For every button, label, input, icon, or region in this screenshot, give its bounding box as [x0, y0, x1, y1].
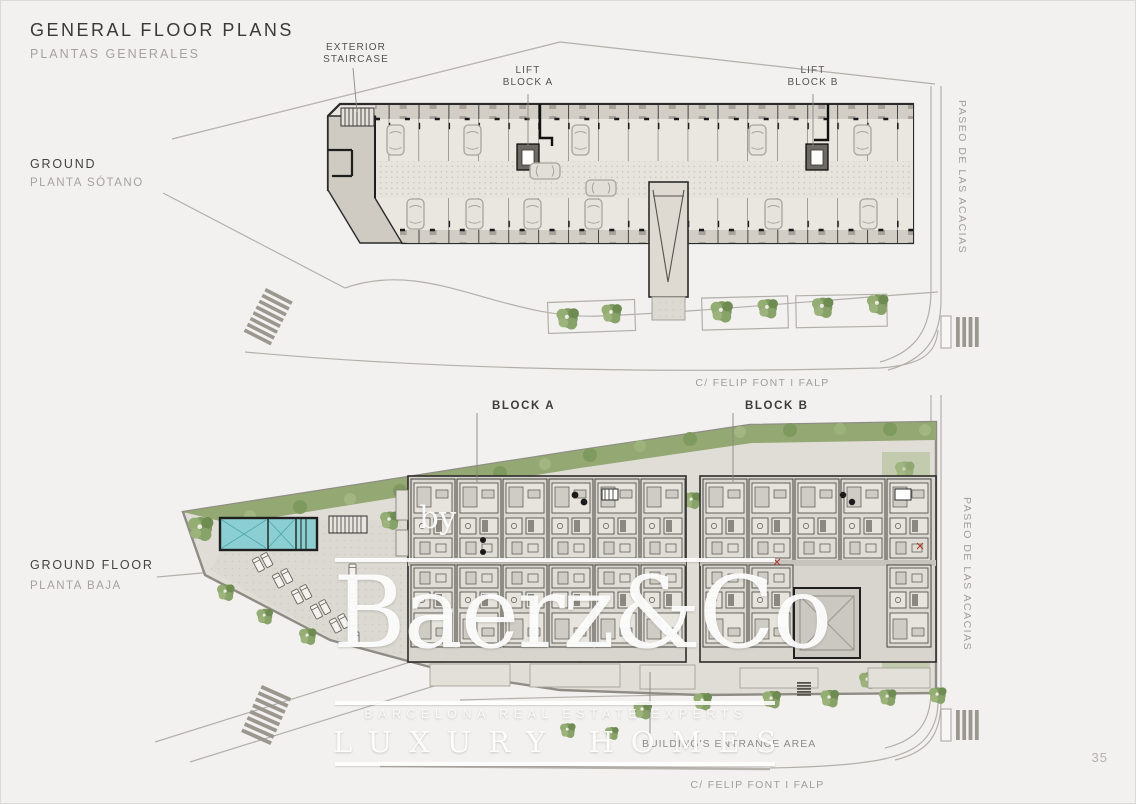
ground-plan-label: GROUND FLOOR [30, 558, 154, 572]
basement-plan-label: GROUND [30, 157, 96, 171]
garden-stairs [329, 516, 367, 533]
watermark-rule-bottom [335, 762, 775, 766]
block-a-label: BLOCK A [492, 400, 555, 412]
watermark-brand: Baerz&Co [333, 564, 779, 663]
basement-parking-plan [328, 104, 913, 320]
watermark-rule-middle [335, 701, 775, 705]
watermark-rule-top [335, 558, 775, 562]
crosswalk-upper-left [244, 288, 293, 345]
crosswalk-lower-left [241, 685, 291, 745]
crosswalk-lower-right [956, 710, 979, 740]
block-b-label: BLOCK B [745, 400, 809, 412]
hedge-texture [244, 422, 931, 522]
terraces [430, 664, 930, 689]
lift-block-b-annotation: LIFT BLOCK B [763, 65, 863, 89]
ground-floor-plan-drawing [183, 422, 936, 696]
lower-leader-lines [477, 413, 733, 737]
crosswalk-upper-right [956, 317, 979, 347]
watermark: by Baerz&Co BARCELONA REAL ESTATE EXPERT… [333, 498, 779, 778]
lift-block-a-annotation: LIFT BLOCK A [478, 65, 578, 89]
block-b-building [700, 476, 936, 662]
watermark-tagline: BARCELONA REAL ESTATE EXPERTS [333, 707, 779, 721]
sun-loungers [252, 552, 359, 646]
block-a-building [396, 476, 686, 662]
lift-shaft-block-a [517, 144, 539, 170]
watermark-by: by [419, 500, 456, 536]
upper-leader-lines [353, 68, 813, 146]
site-trees [188, 462, 927, 690]
exterior-staircase-annotation: EXTERIOR STAIRCASE [306, 42, 406, 66]
street-felip-lower: C/ FELIP FONT I FALP [655, 779, 860, 791]
basement-plan-label-es: PLANTA SÓTANO [30, 177, 144, 189]
building-entrance-hall [794, 588, 860, 658]
street-felip-upper: C/ FELIP FONT I FALP [660, 377, 865, 389]
page-subtitle: PLANTAS GENERALES [30, 47, 200, 61]
street-paseo-upper: PASEO DE LAS ACACIAS [956, 100, 968, 230]
street-trees-lower [560, 687, 947, 740]
lower-roads [155, 395, 951, 768]
entrance-paving [797, 682, 811, 696]
upper-roads [163, 42, 951, 370]
street-trees-upper [557, 295, 889, 330]
ground-plan-label-es: PLANTA BAJA [30, 580, 122, 592]
swimming-pool [220, 518, 317, 550]
page-number: 35 [1092, 750, 1108, 765]
lift-shaft-block-b [806, 144, 828, 170]
building-entrance-label: BUILDING'S ENTRANCE AREA [642, 738, 816, 750]
street-paseo-lower: PASEO DE LAS ACACIAS [961, 497, 973, 627]
page-title: GENERAL FLOOR PLANS [30, 20, 294, 41]
brochure-page: GENERAL FLOOR PLANS PLANTAS GENERALES GR… [0, 0, 1136, 804]
